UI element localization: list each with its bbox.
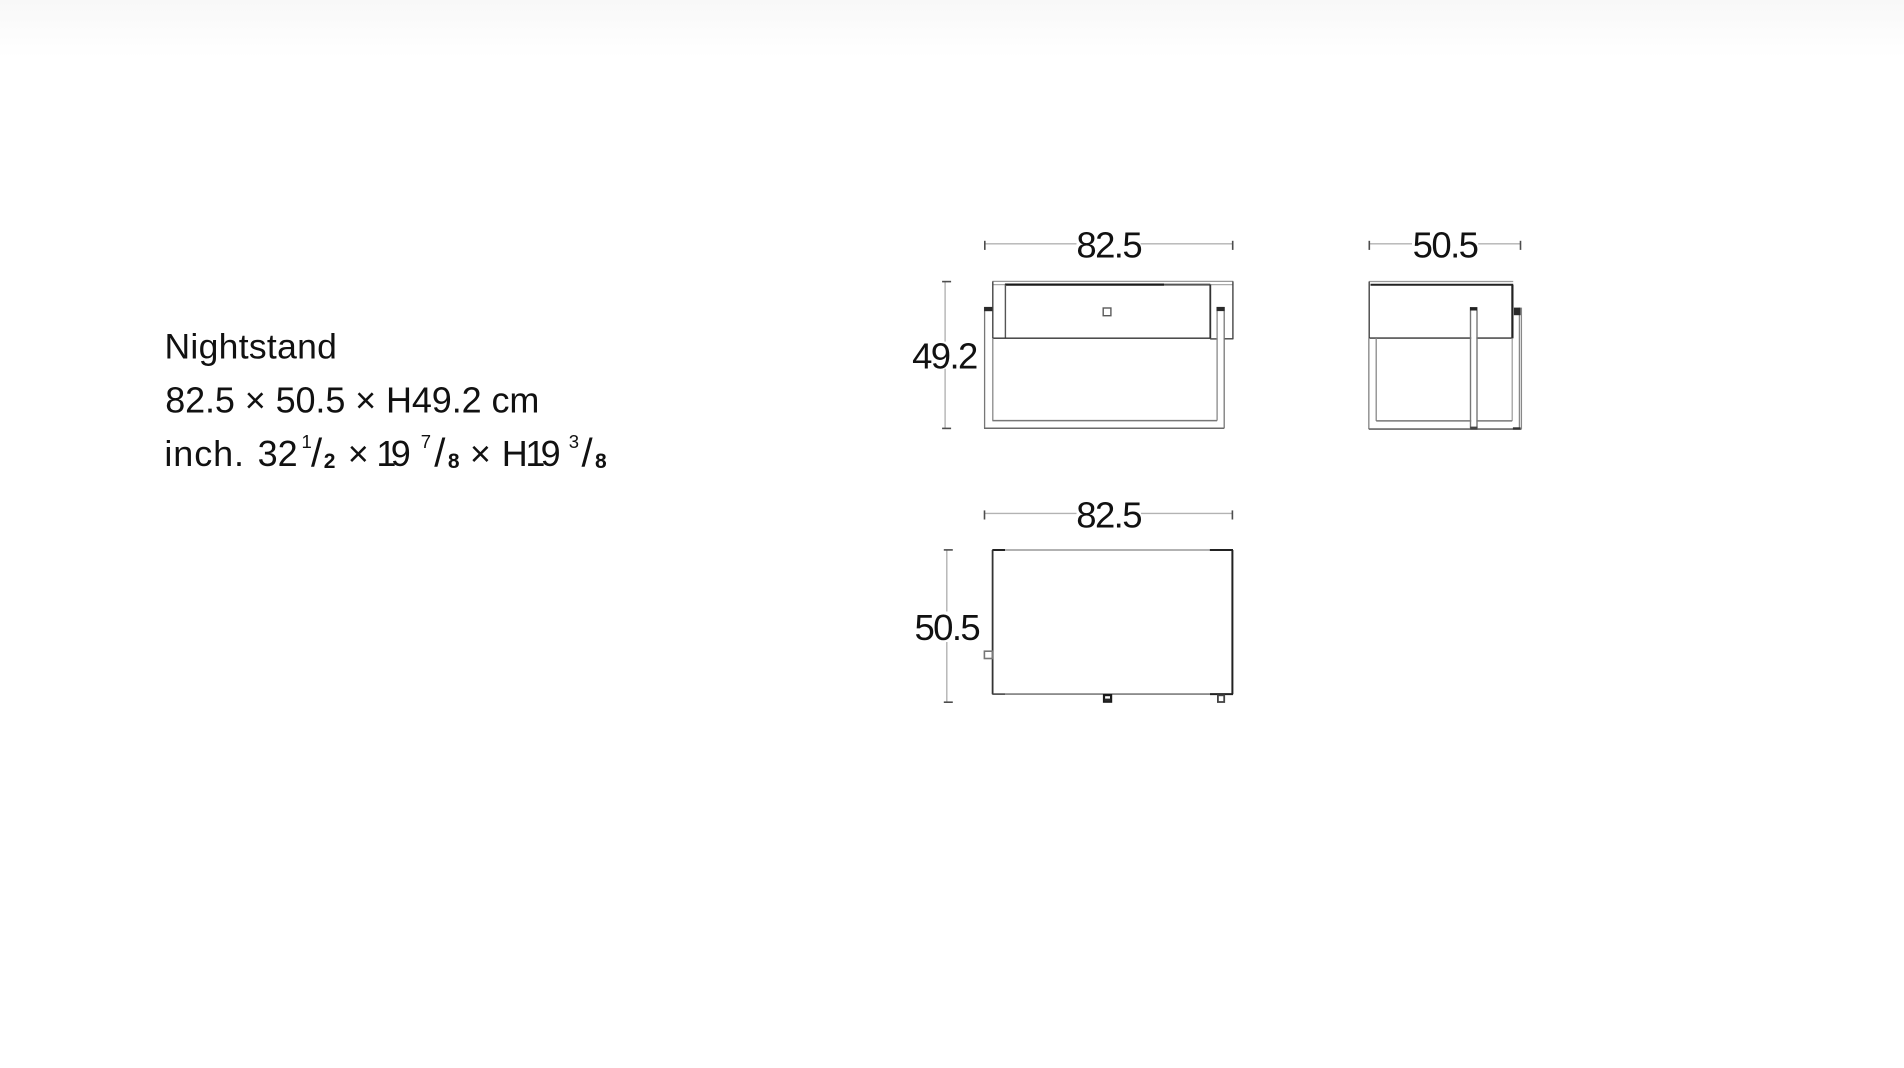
svg-text:2: 2 [324,450,336,473]
svg-text:/: / [434,432,446,476]
svg-text:×: × [348,433,369,474]
svg-text:7: 7 [421,431,431,452]
svg-text:82.5 × 50.5 × H49.2 cm: 82.5 × 50.5 × H49.2 cm [165,380,539,421]
svg-text:×: × [470,433,491,474]
svg-text:82.5: 82.5 [1076,495,1141,536]
svg-text:50.5: 50.5 [1413,225,1478,266]
svg-text:3: 3 [569,431,579,452]
svg-text:H: H [502,433,528,474]
svg-text:82.5: 82.5 [1076,225,1141,266]
svg-text:50.5: 50.5 [914,607,979,648]
svg-text:/: / [582,432,594,476]
svg-text:9: 9 [541,433,561,474]
svg-text:49.2: 49.2 [912,336,977,377]
svg-text:Nightstand: Nightstand [165,327,338,367]
svg-text:8: 8 [448,450,460,473]
svg-text:/: / [311,432,323,476]
svg-text:32: 32 [258,433,298,474]
svg-text:inch.: inch. [164,433,245,474]
svg-text:8: 8 [595,450,607,473]
svg-text:9: 9 [391,433,411,474]
